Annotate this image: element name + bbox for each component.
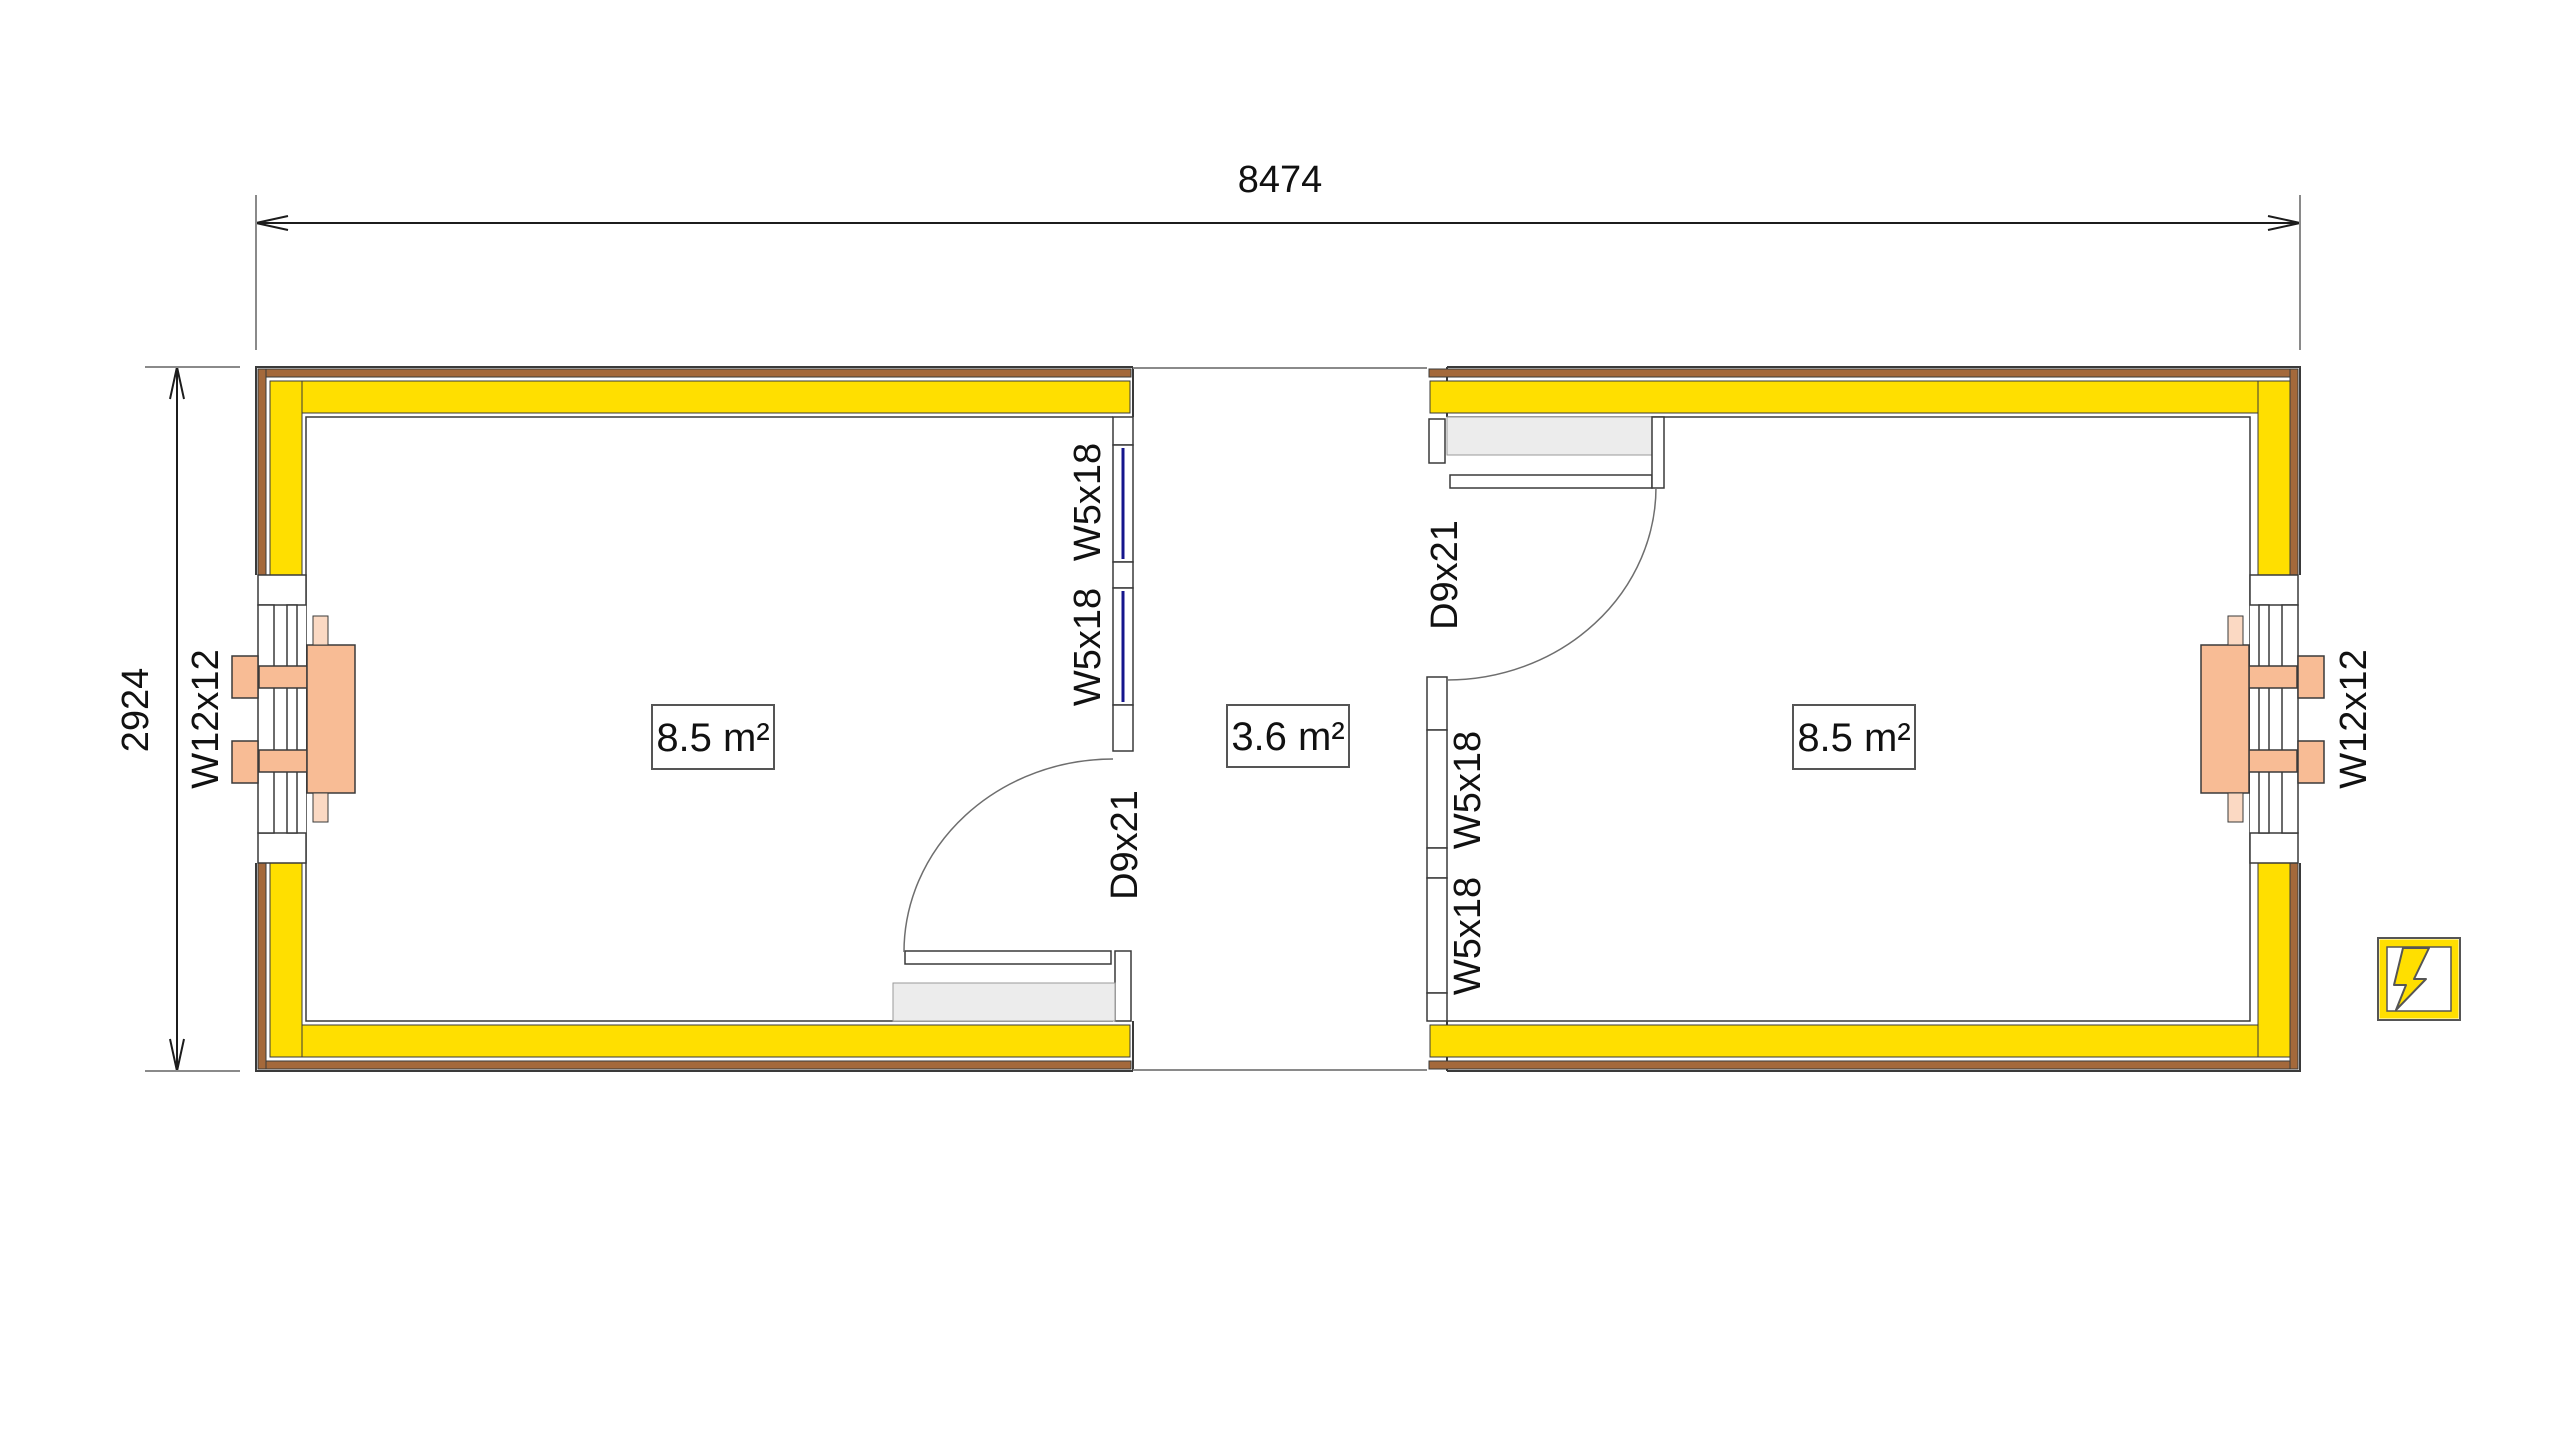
window-w12x12-right: W12x12 xyxy=(2201,575,2375,863)
window-interior-strip-lower xyxy=(313,793,328,822)
window-interior-unit xyxy=(307,645,355,793)
dimension-width: 8474 xyxy=(256,159,2300,350)
dimension-width-label: 8474 xyxy=(1238,159,1323,201)
window-frame-post-top xyxy=(258,575,306,605)
wall-cladding-top xyxy=(1429,369,2298,377)
window-frame-glazing xyxy=(287,605,297,833)
window-w5x18-upper xyxy=(1427,730,1447,848)
window-exterior-block-upper xyxy=(2298,656,2324,698)
door-d9x21-left-label: D9x21 xyxy=(1104,790,1146,900)
wall-post xyxy=(1427,677,1447,730)
window-outer-sill xyxy=(2282,605,2298,833)
door-jamb xyxy=(1115,951,1131,1021)
floor-plan-drawing: 8474 2924 xyxy=(0,0,2560,1435)
wall-cladding-top xyxy=(258,369,1131,377)
room-left-area-tag: 8.5 m² xyxy=(652,705,774,769)
window-interior-strip-upper xyxy=(313,616,328,645)
door-jamb xyxy=(1429,419,1445,463)
window-exterior-block-lower xyxy=(232,741,258,783)
wall-insulation-top xyxy=(1430,381,2290,413)
window-frame-post-bottom xyxy=(258,833,306,863)
window-hardware-bar-upper xyxy=(259,666,307,688)
window-w5x18-lower-label: W5x18 xyxy=(1447,877,1489,995)
door-d9x21-right-label: D9x21 xyxy=(1424,520,1466,630)
module-left-partition-wall: W5x18 W5x18 xyxy=(1067,417,1133,1021)
wall-insulation-top xyxy=(270,381,1130,413)
door-leaf xyxy=(905,951,1111,964)
door-swing-arc xyxy=(1447,487,1656,680)
room-left-area-label: 8.5 m² xyxy=(656,716,769,760)
room-right-area-label: 8.5 m² xyxy=(1797,716,1910,760)
terrace-area-tag: 3.6 m² xyxy=(1227,705,1349,767)
window-frame-glazing xyxy=(2259,605,2269,833)
door-d9x21-left: D9x21 xyxy=(893,759,1146,1021)
window-w5x18-upper-label: W5x18 xyxy=(1447,731,1489,849)
window-interior-unit xyxy=(2201,645,2249,793)
window-w5x18-upper-label: W5x18 xyxy=(1067,443,1109,561)
wall-insulation-bottom xyxy=(270,1025,1130,1057)
door-d9x21-right: D9x21 xyxy=(1424,417,1664,680)
window-frame-post-bottom xyxy=(2250,833,2298,863)
window-interior-strip-lower xyxy=(2228,793,2243,822)
door-threshold-zone xyxy=(893,983,1115,1021)
dimension-height-label: 2924 xyxy=(115,668,157,753)
wall-cladding-bottom xyxy=(258,1061,1131,1069)
door-swing-arc xyxy=(904,759,1113,952)
window-interior-strip-upper xyxy=(2228,616,2243,645)
floor-plan-canvas: 8474 2924 xyxy=(0,0,2560,1435)
wall-insulation-bottom xyxy=(1430,1025,2290,1057)
window-exterior-block-upper xyxy=(232,656,258,698)
module-left: W12x12 W5x18 W5x18 D9x21 8.5 m² xyxy=(185,367,1146,1071)
room-right-area-tag: 8.5 m² xyxy=(1793,705,1915,769)
door-jamb xyxy=(1652,417,1664,488)
door-leaf xyxy=(1450,475,1652,488)
wall-cladding-bottom xyxy=(1429,1061,2298,1069)
window-w12x12-left-label: W12x12 xyxy=(185,649,227,788)
terrace-area-label: 3.6 m² xyxy=(1231,715,1344,759)
window-frame-post-top xyxy=(2250,575,2298,605)
window-hardware-bar-lower xyxy=(2249,750,2297,772)
window-hardware-bar-upper xyxy=(2249,666,2297,688)
wall-post xyxy=(1113,417,1133,445)
wall-insulation-left-lower xyxy=(270,863,302,1057)
window-w12x12-left: W12x12 xyxy=(185,575,355,863)
door-threshold-zone xyxy=(1447,417,1653,455)
wall-post xyxy=(1113,705,1133,751)
window-hardware-bar-lower xyxy=(259,750,307,772)
window-w12x12-right-label: W12x12 xyxy=(2333,649,2375,788)
wall-insulation-right-upper xyxy=(2258,381,2290,575)
wall-insulation-right-lower xyxy=(2258,863,2290,1057)
wall-insulation-left-upper xyxy=(270,381,302,575)
terrace-center: 3.6 m² xyxy=(1133,368,1427,1070)
window-w5x18-lower-label: W5x18 xyxy=(1067,588,1109,706)
wall-post xyxy=(1113,562,1133,588)
electric-symbol xyxy=(2378,938,2460,1020)
wall-post xyxy=(1427,993,1447,1021)
window-outer-sill xyxy=(258,605,274,833)
wall-post xyxy=(1427,848,1447,878)
window-w5x18-lower xyxy=(1427,878,1447,993)
module-right-partition-wall: W5x18 W5x18 xyxy=(1427,419,1489,1021)
module-right: W12x12 W5x18 W5x18 D9x21 8.5 m² xyxy=(1424,367,2375,1071)
window-exterior-block-lower xyxy=(2298,741,2324,783)
